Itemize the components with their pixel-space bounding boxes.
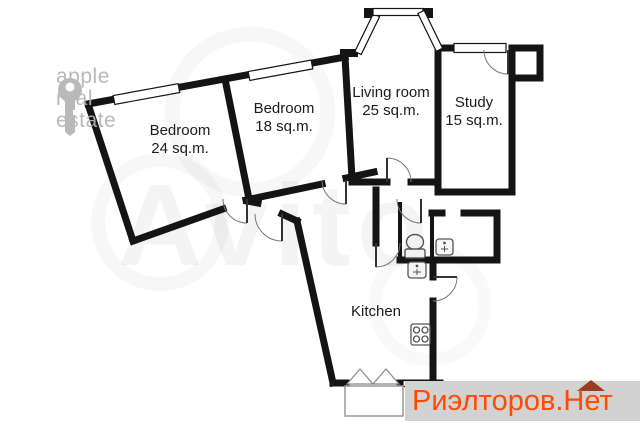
listing-banner: Риэлторов.Нет — [405, 381, 640, 421]
sink-icon — [408, 262, 426, 278]
room-label-living-room: Living room 25 sq.m. — [352, 84, 430, 121]
room-name: Bedroom — [150, 122, 211, 140]
room-area: 25 sq.m. — [352, 102, 430, 120]
stove-icon — [411, 324, 430, 345]
room-name: Study — [445, 94, 503, 112]
sink-icon — [436, 239, 453, 255]
room-label-study: Study 15 sq.m. — [445, 94, 503, 131]
floor-plan-image: Avito — [0, 0, 640, 426]
room-area: 24 sq.m. — [150, 140, 211, 158]
agency-watermark: apple real estate — [56, 66, 116, 132]
room-label-bedroom-24: Bedroom 24 sq.m. — [150, 122, 211, 159]
key-icon — [56, 66, 86, 138]
room-label-kitchen: Kitchen — [351, 303, 401, 321]
toilet-icon — [405, 235, 425, 259]
listing-banner-text: Риэлторов.Нет — [412, 385, 613, 418]
room-label-bedroom-18: Bedroom 18 sq.m. — [254, 100, 315, 137]
balcony — [345, 369, 403, 416]
room-area: 15 sq.m. — [445, 112, 503, 130]
french-door — [347, 369, 399, 384]
window — [248, 60, 313, 80]
window — [113, 84, 180, 105]
room-name: Living room — [352, 84, 430, 102]
room-name: Kitchen — [351, 303, 401, 321]
floor-plan-svg — [0, 0, 640, 426]
room-area: 18 sq.m. — [254, 118, 315, 136]
room-name: Bedroom — [254, 100, 315, 118]
window — [454, 44, 506, 53]
walls — [88, 8, 540, 383]
